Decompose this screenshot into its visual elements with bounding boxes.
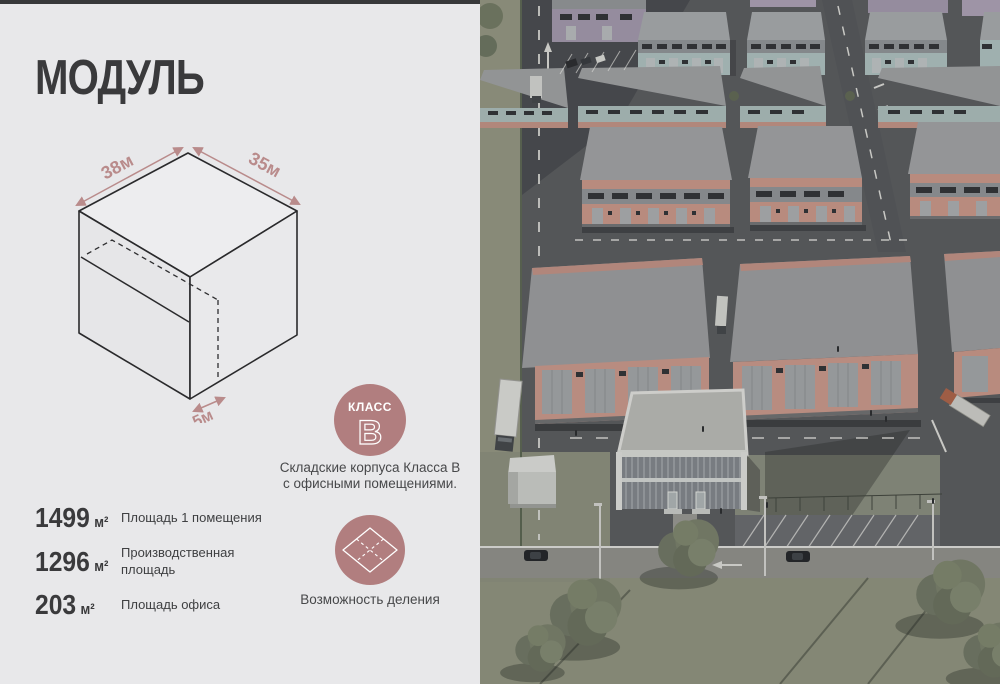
info-panel: МОДУЛЬ: [0, 0, 480, 684]
industrial-park-scene: [480, 0, 1000, 684]
stat-room-area: 1499м² Площадь 1 помещения: [35, 498, 315, 538]
class-caption: Складские корпуса Класса В с офисными по…: [275, 460, 465, 492]
stat-value: 203: [35, 589, 76, 620]
depth-dimension-label: 35м: [245, 148, 284, 181]
stat-label: Производственная площадь: [121, 545, 246, 578]
stat-label: Площадь 1 помещения: [121, 510, 271, 526]
stat-unit: м²: [94, 558, 108, 575]
stat-label: Площадь офиса: [121, 597, 271, 613]
module-dimensions-diagram: 38м 35м 5м: [40, 128, 320, 423]
slide-root: МОДУЛЬ: [0, 0, 1000, 684]
division-icon: [335, 515, 405, 585]
class-b-badge: КЛАСС B: [334, 384, 406, 461]
top-accent-bar: [0, 0, 480, 4]
class-letter: B: [358, 414, 383, 452]
stat-value: 1499: [35, 502, 90, 533]
stat-office-area: 203м² Площадь офиса: [35, 585, 315, 625]
aerial-render: [480, 0, 1000, 684]
page-title: МОДУЛЬ: [35, 50, 204, 106]
width-dimension-label: 38м: [98, 150, 137, 183]
stats-list: 1499м² Площадь 1 помещения 1296м² Произв…: [35, 498, 315, 625]
stat-unit: м²: [94, 514, 108, 531]
cube-diagram-svg: 38м 35м 5м: [40, 128, 320, 423]
class-label: КЛАСС: [348, 400, 392, 414]
office-dimension-label: 5м: [190, 407, 216, 423]
class-b-badge-icon: КЛАСС B: [334, 384, 406, 456]
overlay-tint: [480, 0, 1000, 684]
stat-value: 1296: [35, 546, 90, 577]
stat-unit: м²: [81, 601, 95, 618]
division-badge: [335, 515, 405, 590]
stat-production-area: 1296м² Производственная площадь: [35, 538, 315, 585]
